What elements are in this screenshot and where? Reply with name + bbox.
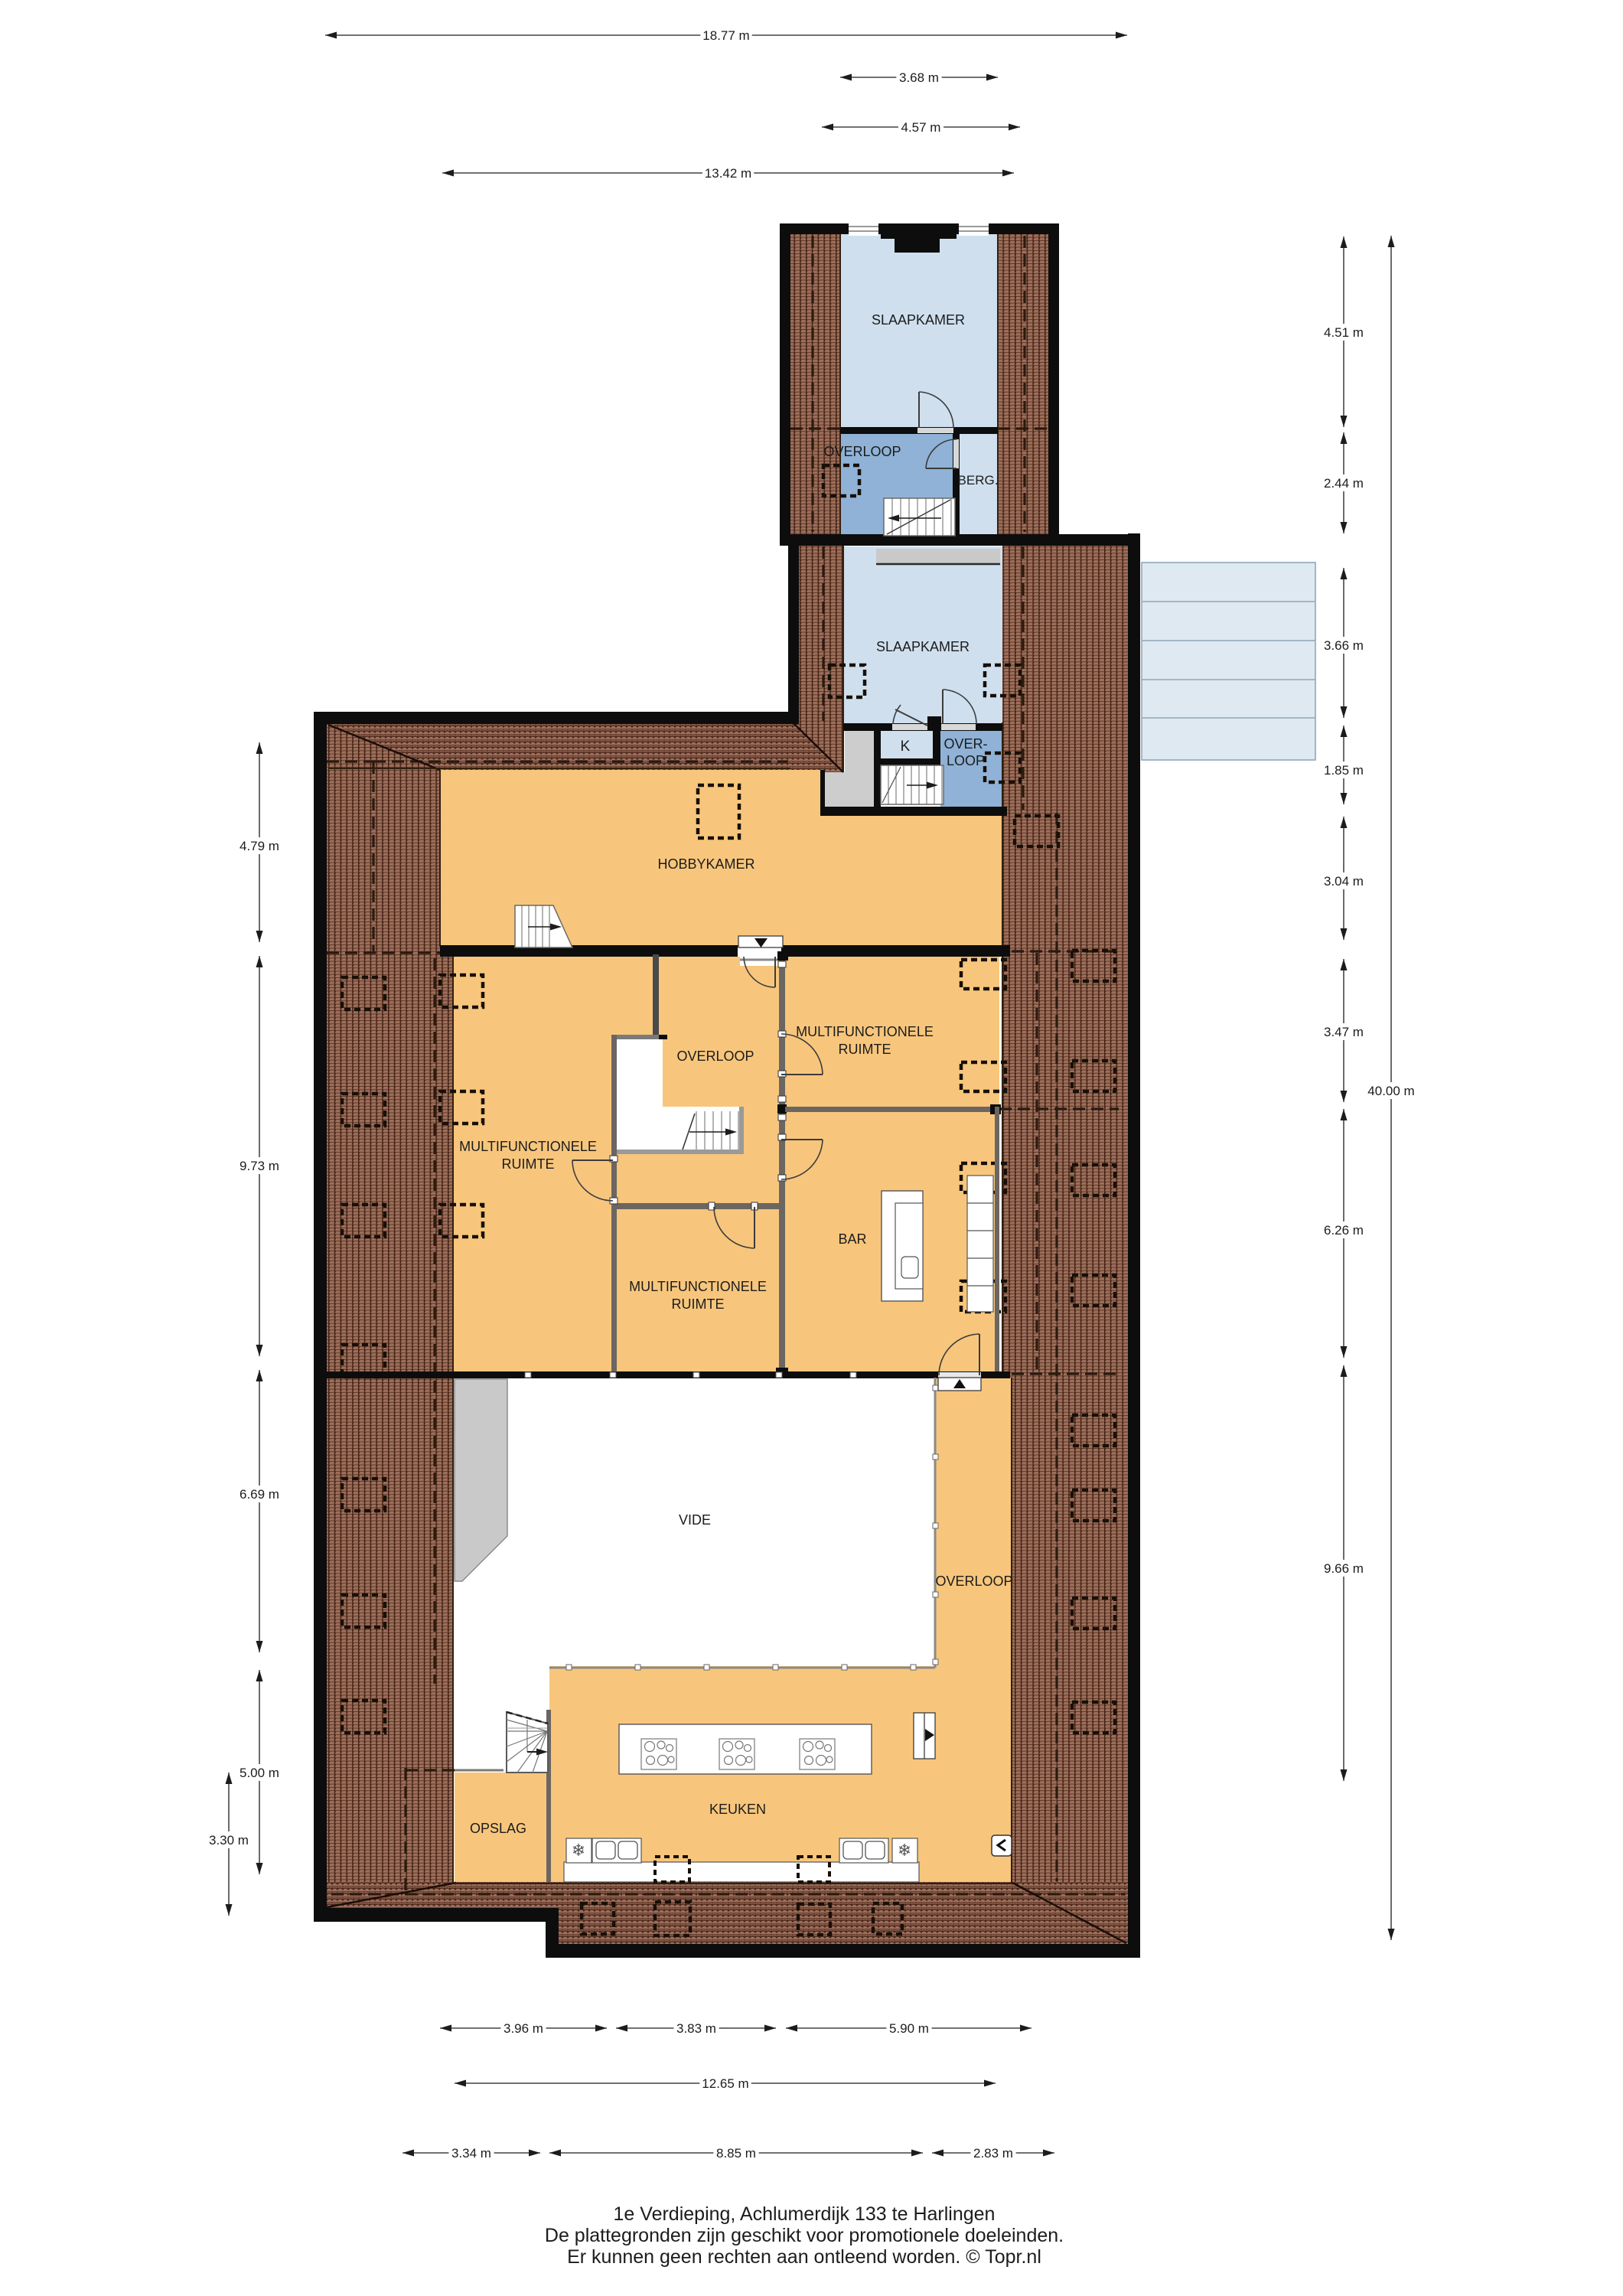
svg-text:3.30 m: 3.30 m [209,1833,249,1848]
svg-text:SLAAPKAMER: SLAAPKAMER [876,639,970,654]
svg-text:2.83 m: 2.83 m [973,2146,1013,2161]
svg-text:OVER-: OVER- [943,736,987,752]
svg-text:4.57 m: 4.57 m [901,120,941,135]
svg-text:18.77 m: 18.77 m [702,28,749,43]
svg-text:3.66 m: 3.66 m [1324,638,1364,653]
svg-text:BERG.: BERG. [958,473,999,488]
svg-text:3.68 m: 3.68 m [899,70,939,85]
svg-text:MULTIFUNCTIONELE: MULTIFUNCTIONELE [629,1279,767,1294]
svg-text:5.90 m: 5.90 m [889,2021,929,2036]
svg-text:Er kunnen geen rechten aan ont: Er kunnen geen rechten aan ontleend word… [567,2246,1041,2268]
svg-text:3.34 m: 3.34 m [451,2146,491,2161]
svg-text:OVERLOOP: OVERLOOP [935,1574,1012,1589]
svg-text:6.26 m: 6.26 m [1324,1223,1364,1238]
svg-text:9.73 m: 9.73 m [240,1159,279,1173]
svg-text:2.44 m: 2.44 m [1324,476,1364,491]
svg-text:❄: ❄ [572,1841,585,1860]
svg-text:12.65 m: 12.65 m [702,2076,748,2091]
svg-text:OVERLOOP: OVERLOOP [676,1049,754,1064]
svg-text:HOBBYKAMER: HOBBYKAMER [657,856,754,872]
svg-text:1.85 m: 1.85 m [1324,763,1364,778]
svg-text:40.00 m: 40.00 m [1367,1084,1414,1098]
svg-text:4.79 m: 4.79 m [240,839,279,853]
svg-text:LOOP: LOOP [947,753,985,768]
svg-text:MULTIFUNCTIONELE: MULTIFUNCTIONELE [459,1139,597,1154]
svg-text:4.51 m: 4.51 m [1324,325,1364,340]
svg-text:❄: ❄ [898,1841,911,1860]
svg-text:OPSLAG: OPSLAG [470,1821,526,1836]
svg-text:De plattegronden zijn geschikt: De plattegronden zijn geschikt voor prom… [545,2225,1064,2246]
svg-text:BAR: BAR [838,1231,866,1247]
svg-text:VIDE: VIDE [679,1512,711,1528]
svg-text:3.96 m: 3.96 m [504,2021,543,2036]
svg-text:6.69 m: 6.69 m [240,1487,279,1502]
svg-text:MULTIFUNCTIONELE: MULTIFUNCTIONELE [796,1024,934,1039]
svg-text:K: K [901,739,911,755]
svg-text:RUIMTE: RUIMTE [502,1156,555,1172]
svg-text:1e Verdieping, Achlumerdijk 13: 1e Verdieping, Achlumerdijk 133 te Harli… [614,2203,996,2225]
svg-text:RUIMTE: RUIMTE [672,1296,725,1312]
svg-text:KEUKEN: KEUKEN [709,1802,766,1817]
svg-text:3.47 m: 3.47 m [1324,1025,1364,1039]
svg-text:9.66 m: 9.66 m [1324,1561,1364,1576]
svg-text:3.04 m: 3.04 m [1324,874,1364,889]
svg-text:5.00 m: 5.00 m [240,1766,279,1780]
svg-text:OVERLOOP: OVERLOOP [823,444,901,459]
svg-text:RUIMTE: RUIMTE [839,1042,891,1057]
svg-text:SLAAPKAMER: SLAAPKAMER [872,312,965,328]
svg-text:8.85 m: 8.85 m [716,2146,756,2161]
svg-text:13.42 m: 13.42 m [705,166,751,181]
svg-text:3.83 m: 3.83 m [676,2021,716,2036]
